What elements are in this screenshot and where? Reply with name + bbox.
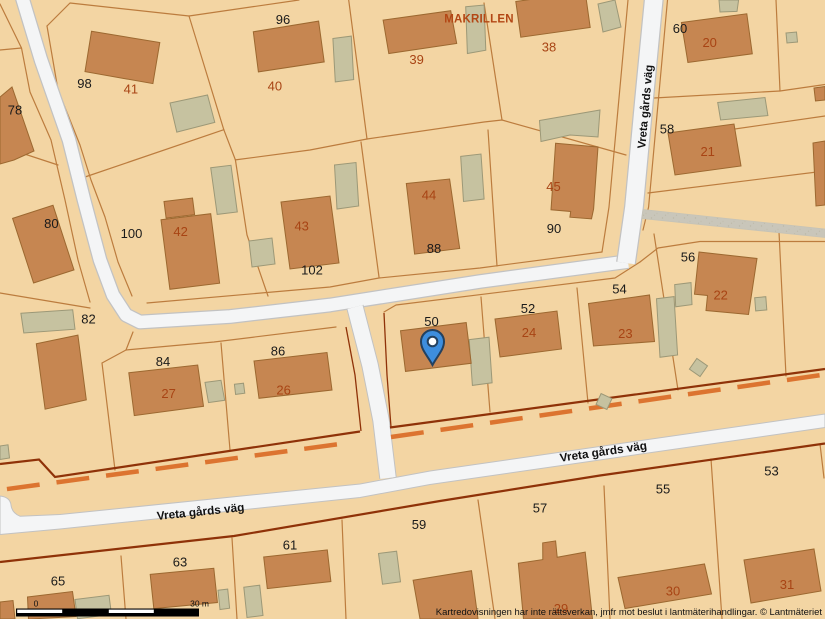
svg-text:59: 59 xyxy=(412,517,426,532)
svg-text:41: 41 xyxy=(124,82,138,97)
svg-text:42: 42 xyxy=(173,224,187,239)
svg-text:MAKRILLEN: MAKRILLEN xyxy=(444,14,514,26)
svg-text:22: 22 xyxy=(713,288,727,303)
svg-text:82: 82 xyxy=(81,312,95,327)
svg-text:40: 40 xyxy=(268,79,282,94)
svg-text:54: 54 xyxy=(612,282,626,297)
svg-text:84: 84 xyxy=(156,354,170,369)
svg-text:26: 26 xyxy=(276,383,290,398)
svg-text:60: 60 xyxy=(673,21,687,36)
svg-text:45: 45 xyxy=(546,179,560,194)
svg-text:Kartredovisningen har inte rät: Kartredovisningen har inte rättsverkan, … xyxy=(436,607,823,618)
svg-text:53: 53 xyxy=(764,464,778,479)
svg-text:58: 58 xyxy=(660,122,674,137)
svg-text:63: 63 xyxy=(173,555,187,570)
svg-text:50: 50 xyxy=(424,314,438,329)
svg-text:31: 31 xyxy=(780,577,794,592)
svg-text:30: 30 xyxy=(666,584,680,599)
svg-text:86: 86 xyxy=(271,344,285,359)
svg-text:0: 0 xyxy=(34,599,39,609)
svg-text:27: 27 xyxy=(161,386,175,401)
svg-text:24: 24 xyxy=(522,325,536,340)
svg-text:78: 78 xyxy=(8,103,22,118)
svg-text:44: 44 xyxy=(422,188,436,203)
svg-text:20: 20 xyxy=(702,35,716,50)
svg-text:102: 102 xyxy=(301,263,323,278)
svg-text:100: 100 xyxy=(121,226,143,241)
svg-text:80: 80 xyxy=(44,216,58,231)
svg-text:21: 21 xyxy=(700,144,714,159)
svg-text:90: 90 xyxy=(547,221,561,236)
svg-text:30 m: 30 m xyxy=(190,599,209,609)
svg-text:43: 43 xyxy=(294,219,308,234)
svg-text:88: 88 xyxy=(427,241,441,256)
svg-text:55: 55 xyxy=(656,482,670,497)
svg-text:57: 57 xyxy=(533,501,547,516)
svg-text:23: 23 xyxy=(618,326,632,341)
svg-text:52: 52 xyxy=(521,301,535,316)
svg-text:56: 56 xyxy=(681,250,695,265)
svg-text:39: 39 xyxy=(409,52,423,67)
svg-text:38: 38 xyxy=(542,40,556,55)
svg-text:98: 98 xyxy=(77,76,91,91)
svg-text:61: 61 xyxy=(283,538,297,553)
svg-text:96: 96 xyxy=(276,12,290,27)
svg-text:65: 65 xyxy=(51,574,65,589)
